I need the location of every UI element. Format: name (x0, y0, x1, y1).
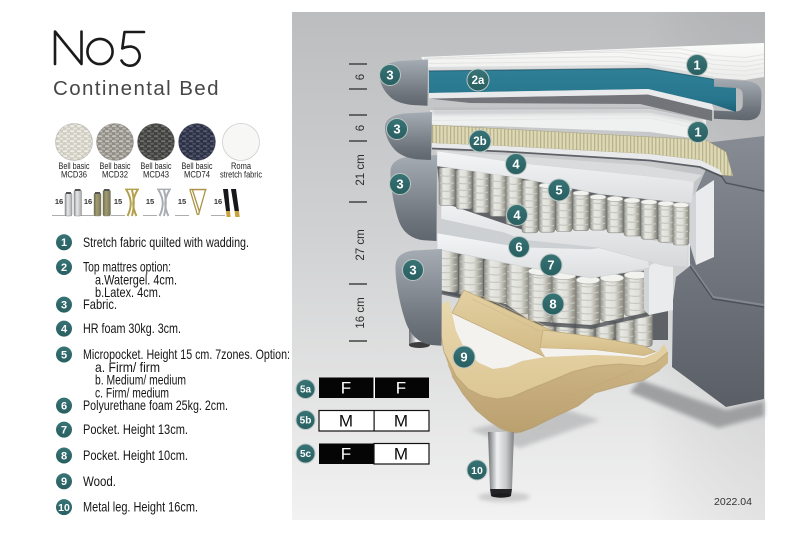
svg-text:10: 10 (471, 465, 483, 477)
svg-text:1: 1 (61, 237, 67, 249)
svg-text:6: 6 (355, 74, 367, 80)
svg-text:8: 8 (549, 297, 556, 312)
svg-text:8: 8 (61, 450, 67, 462)
svg-text:2a: 2a (472, 75, 485, 87)
svg-text:M: M (394, 445, 408, 464)
svg-text:M: M (394, 412, 408, 431)
svg-text:HR foam 30kg. 3cm.: HR foam 30kg. 3cm. (83, 321, 181, 336)
svg-text:16 cm: 16 cm (355, 297, 367, 328)
svg-text:Pocket. Height 13cm.: Pocket. Height 13cm. (83, 422, 188, 437)
svg-text:21 cm: 21 cm (355, 154, 367, 185)
svg-text:2022.04: 2022.04 (714, 496, 752, 508)
svg-text:6: 6 (61, 400, 67, 412)
svg-text:5b: 5b (300, 416, 312, 427)
svg-text:5: 5 (61, 349, 67, 361)
svg-text:5c: 5c (300, 449, 312, 460)
svg-text:Polyurethane foam 25kg. 2cm.: Polyurethane foam 25kg. 2cm. (83, 398, 228, 413)
svg-text:3: 3 (61, 299, 67, 311)
svg-text:27 cm: 27 cm (355, 229, 367, 260)
svg-text:3: 3 (393, 122, 400, 137)
svg-text:Fabric.: Fabric. (83, 297, 117, 312)
svg-text:5a: 5a (300, 385, 312, 396)
svg-text:15: 15 (178, 197, 186, 206)
svg-text:Continental Bed: Continental Bed (53, 77, 220, 100)
svg-text:5: 5 (555, 183, 562, 198)
svg-text:6: 6 (355, 125, 367, 131)
svg-text:Wood.: Wood. (83, 474, 116, 489)
svg-text:4: 4 (61, 323, 68, 335)
svg-text:F: F (341, 445, 351, 464)
svg-text:10: 10 (58, 502, 70, 514)
svg-text:MCD74: MCD74 (184, 170, 210, 180)
svg-text:Stretch fabric quilted with wa: Stretch fabric quilted with wadding. (83, 235, 249, 250)
svg-text:F: F (341, 379, 351, 398)
svg-text:16: 16 (214, 197, 222, 206)
svg-text:3: 3 (386, 68, 393, 83)
svg-text:9: 9 (61, 476, 67, 488)
svg-text:MCD43: MCD43 (143, 170, 169, 180)
svg-text:1: 1 (694, 125, 701, 140)
svg-text:15: 15 (146, 197, 154, 206)
svg-text:4: 4 (512, 157, 520, 172)
svg-text:3: 3 (409, 263, 416, 278)
svg-text:MCD32: MCD32 (102, 170, 128, 180)
svg-text:2b: 2b (473, 136, 486, 148)
svg-text:4: 4 (513, 208, 521, 223)
svg-text:16: 16 (84, 197, 92, 206)
svg-text:Pocket. Height 10cm.: Pocket. Height 10cm. (83, 448, 188, 463)
svg-text:3: 3 (396, 177, 403, 192)
svg-text:stretch fabric: stretch fabric (220, 170, 262, 180)
svg-text:MCD36: MCD36 (61, 170, 87, 180)
svg-text:9: 9 (460, 350, 467, 365)
svg-text:2: 2 (61, 262, 67, 274)
svg-text:6: 6 (515, 240, 522, 255)
svg-text:M: M (339, 412, 353, 431)
svg-text:Metal leg. Height 16cm.: Metal leg. Height 16cm. (83, 500, 198, 515)
svg-text:F: F (396, 379, 406, 398)
svg-text:16: 16 (55, 197, 63, 206)
svg-text:1: 1 (693, 58, 700, 73)
svg-text:15: 15 (114, 197, 122, 206)
svg-text:7: 7 (61, 424, 67, 436)
svg-text:7: 7 (547, 258, 554, 273)
